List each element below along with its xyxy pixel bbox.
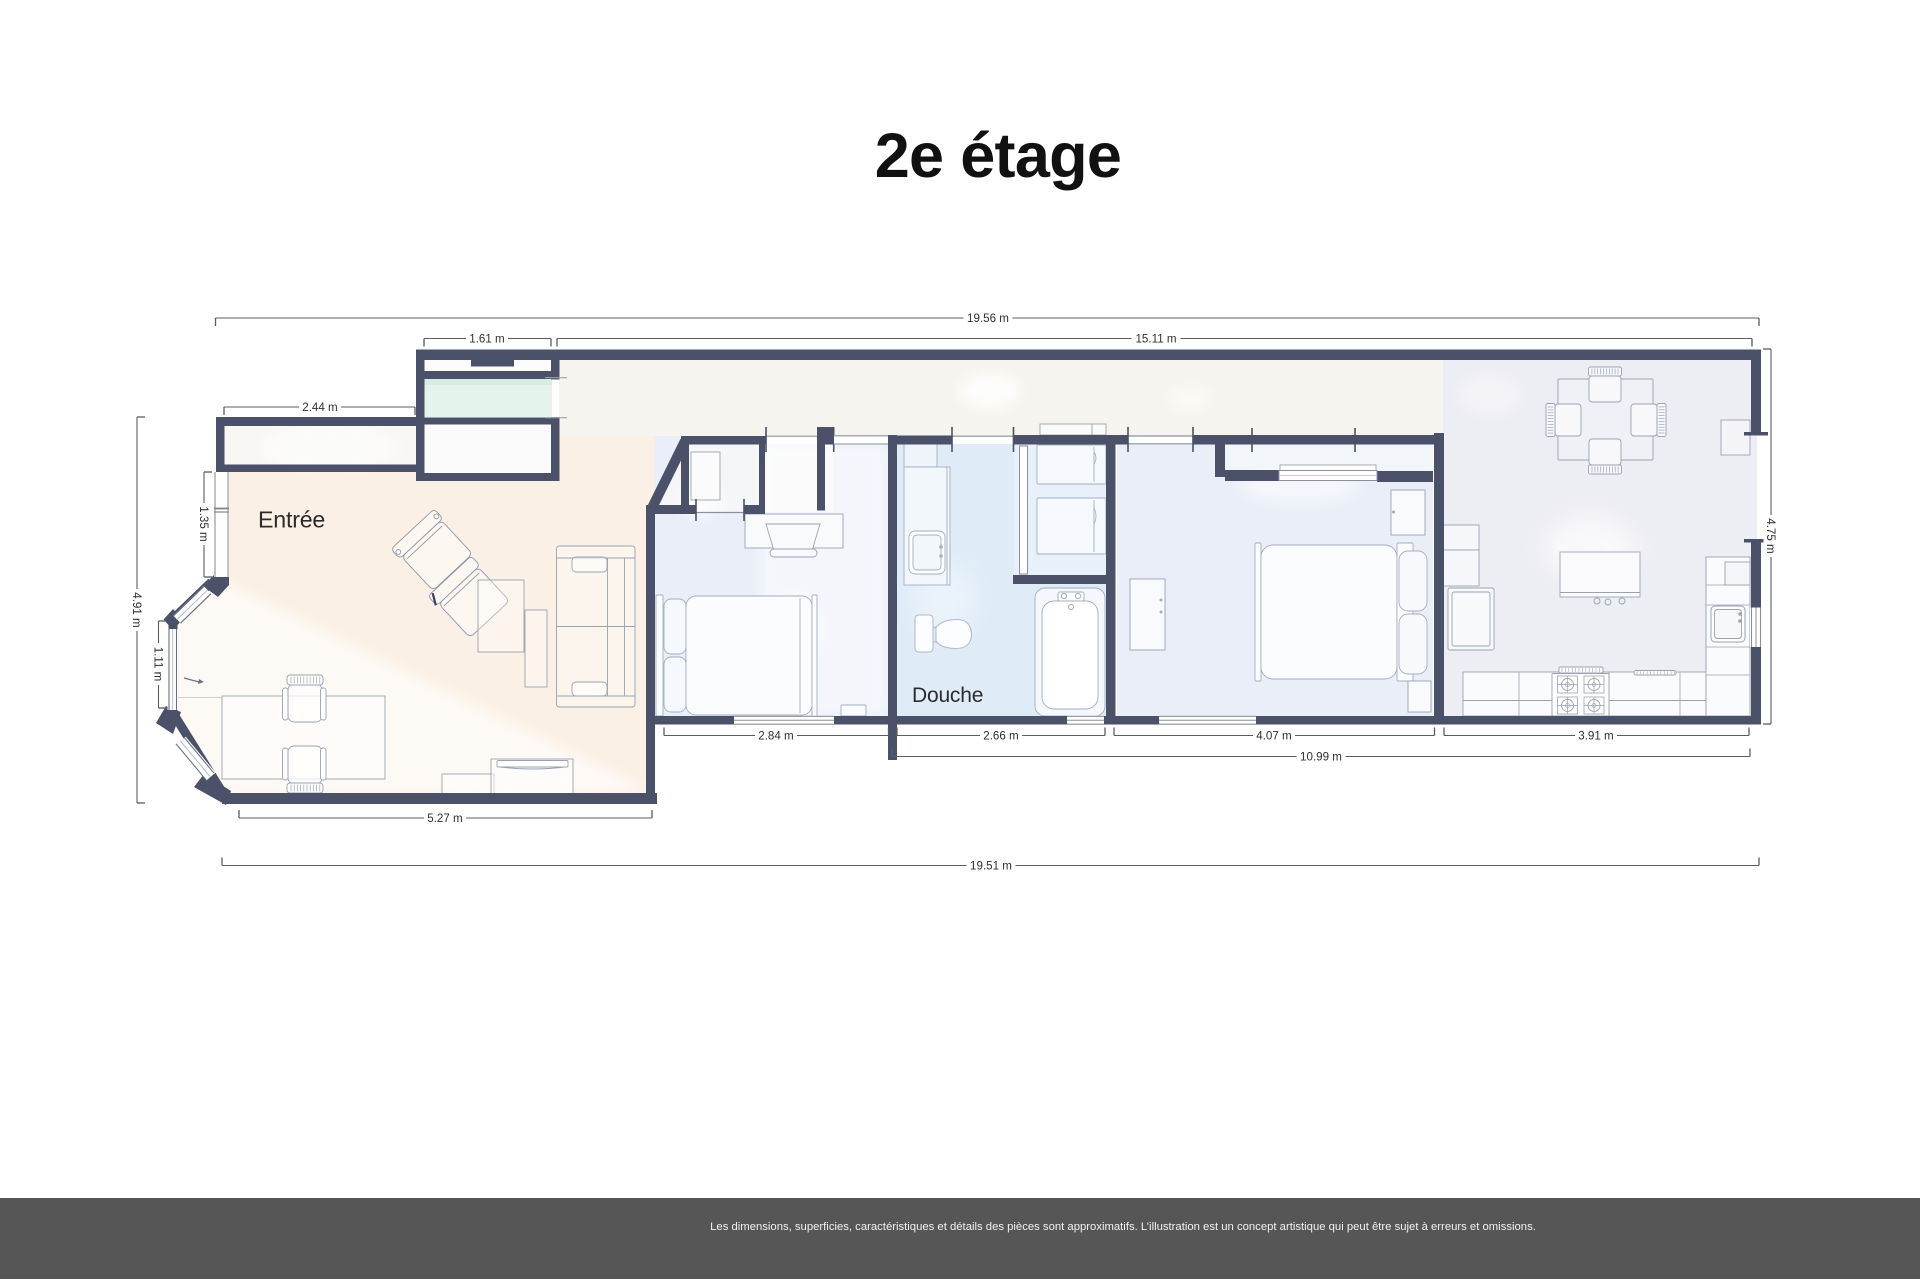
svg-text:2.44 m: 2.44 m — [302, 401, 337, 414]
svg-text:2.84 m: 2.84 m — [758, 730, 793, 743]
svg-text:1.11 m: 1.11 m — [151, 647, 164, 682]
svg-text:1.35 m: 1.35 m — [197, 506, 210, 541]
svg-text:5.27 m: 5.27 m — [427, 812, 462, 825]
svg-text:Les dimensions, superficies, c: Les dimensions, superficies, caractérist… — [710, 1221, 1536, 1233]
svg-text:Douche: Douche — [912, 684, 983, 707]
svg-text:2e étage: 2e étage — [875, 121, 1122, 191]
svg-text:15.11 m: 15.11 m — [1135, 333, 1176, 346]
svg-text:2.66 m: 2.66 m — [983, 730, 1018, 743]
svg-text:1.61 m: 1.61 m — [469, 333, 504, 346]
svg-text:19.56 m: 19.56 m — [967, 312, 1009, 325]
svg-text:4.07 m: 4.07 m — [1256, 730, 1291, 743]
svg-text:Entrée: Entrée — [258, 507, 325, 533]
svg-text:4.91 m: 4.91 m — [130, 592, 143, 627]
svg-text:10.99 m: 10.99 m — [1300, 751, 1342, 764]
svg-text:4.75 m: 4.75 m — [1764, 518, 1777, 553]
svg-text:3.91 m: 3.91 m — [1578, 730, 1613, 743]
svg-text:19.51 m: 19.51 m — [970, 860, 1012, 873]
